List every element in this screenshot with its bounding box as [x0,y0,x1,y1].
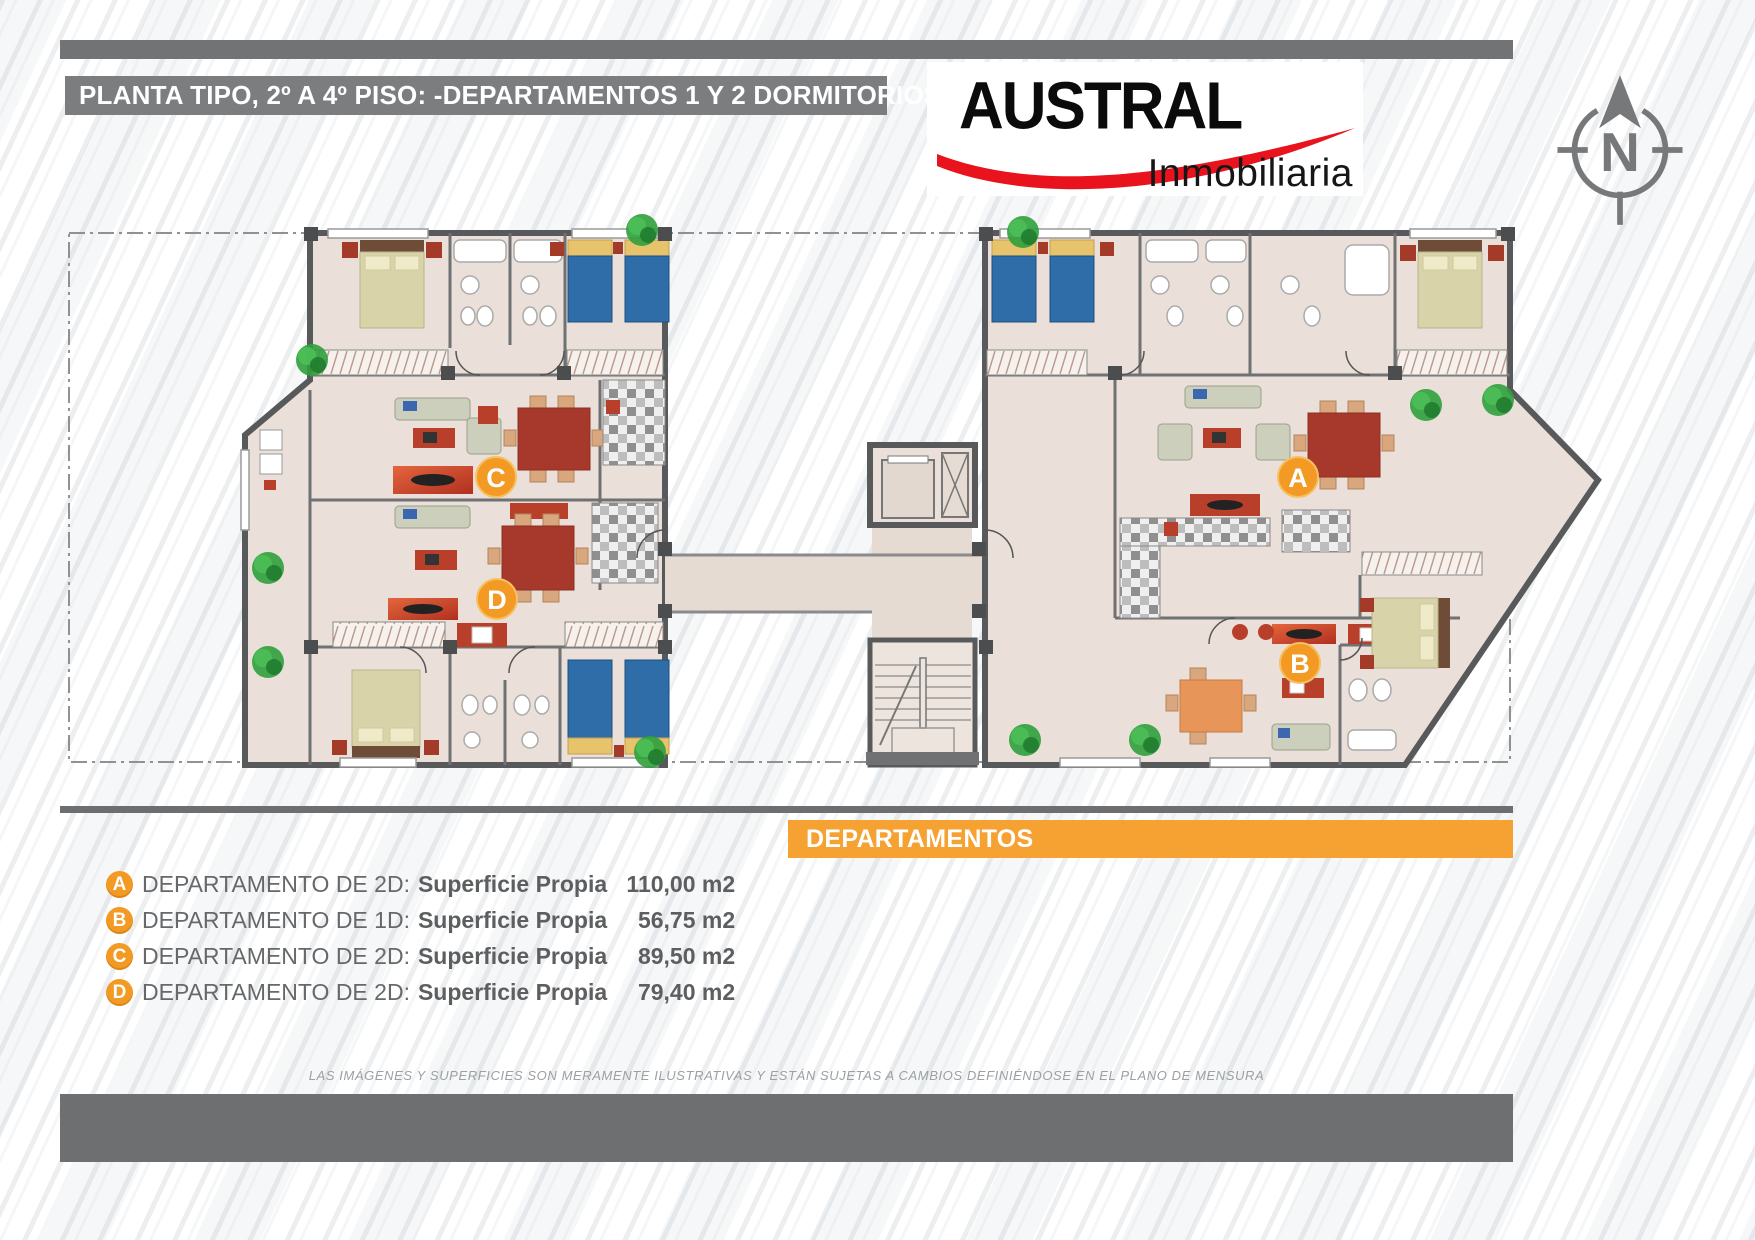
brand-tagline: Inmobiliaria [1148,152,1353,196]
legend-label: DEPARTAMENTO DE 2D: [142,979,410,1006]
legend-badge-b: B [106,907,133,934]
central-core [665,445,985,765]
tree-icon [252,552,284,584]
corridor [665,555,985,612]
unit-badge-c: C [476,457,516,497]
legend-badge-c: C [106,943,133,970]
legend-badge-d: D [106,979,133,1006]
legend-area: 56,75 m2 [607,907,735,934]
legend-item-b: B DEPARTAMENTO DE 1D: Superficie Propia … [106,902,746,938]
svg-text:A: A [1288,463,1308,493]
svg-text:C: C [486,463,506,493]
bedroom-bed-icon [1360,598,1450,669]
disclaimer-text: LAS IMÁGENES Y SUPERFICIES SON MERAMENTE… [60,1068,1513,1083]
tree-icon [1007,216,1039,248]
elevator-icon [870,445,975,525]
legend-label: DEPARTAMENTO DE 2D: [142,943,410,970]
legend: A DEPARTAMENTO DE 2D: Superficie Propia … [106,866,746,1010]
svg-text:B: B [1290,649,1310,679]
legend-detail: Superficie Propia [418,907,607,934]
legend-detail: Superficie Propia [418,871,607,898]
floor-plan: C D A B [60,200,1620,795]
svg-text:D: D [487,585,507,615]
compass-north-label: N [1600,121,1640,183]
footer-bar [60,1094,1513,1162]
page-title: PLANTA TIPO, 2º A 4º PISO: -DEPARTAMENTO… [65,76,887,115]
tree-icon [626,214,658,246]
legend-detail: Superficie Propia [418,943,607,970]
brand-logo: AUSTRAL Inmobiliaria [927,62,1363,196]
legend-label: DEPARTAMENTO DE 2D: [142,871,410,898]
legend-item-d: D DEPARTAMENTO DE 2D: Superficie Propia … [106,974,746,1010]
divider-rule [60,806,1513,813]
tree-icon [634,736,666,768]
legend-area: 89,50 m2 [607,943,735,970]
unit-badge-a: A [1278,457,1318,497]
tree-icon [1410,389,1442,421]
legend-detail: Superficie Propia [418,979,607,1006]
tree-icon [252,646,284,678]
left-wing [241,214,669,768]
legend-item-a: A DEPARTAMENTO DE 2D: Superficie Propia … [106,866,746,902]
unit-badge-d: D [477,579,517,619]
twin-beds-icon [550,240,669,322]
unit-badge-b: B [1280,643,1320,683]
top-rule [60,40,1513,59]
legend-area: 110,00 m2 [607,871,735,898]
legend-section-title: DEPARTAMENTOS [788,820,1513,858]
legend-area: 79,40 m2 [607,979,735,1006]
tree-icon [296,344,328,376]
legend-label: DEPARTAMENTO DE 1D: [142,907,410,934]
stairs-icon [866,640,979,765]
tree-icon [1129,724,1161,756]
tree-icon [1482,384,1514,416]
tree-icon [1009,724,1041,756]
flyer-page: { "header": { "title": "PLANTA TIPO, 2º … [0,0,1755,1240]
legend-item-c: C DEPARTAMENTO DE 2D: Superficie Propia … [106,938,746,974]
legend-badge-a: A [106,871,133,898]
